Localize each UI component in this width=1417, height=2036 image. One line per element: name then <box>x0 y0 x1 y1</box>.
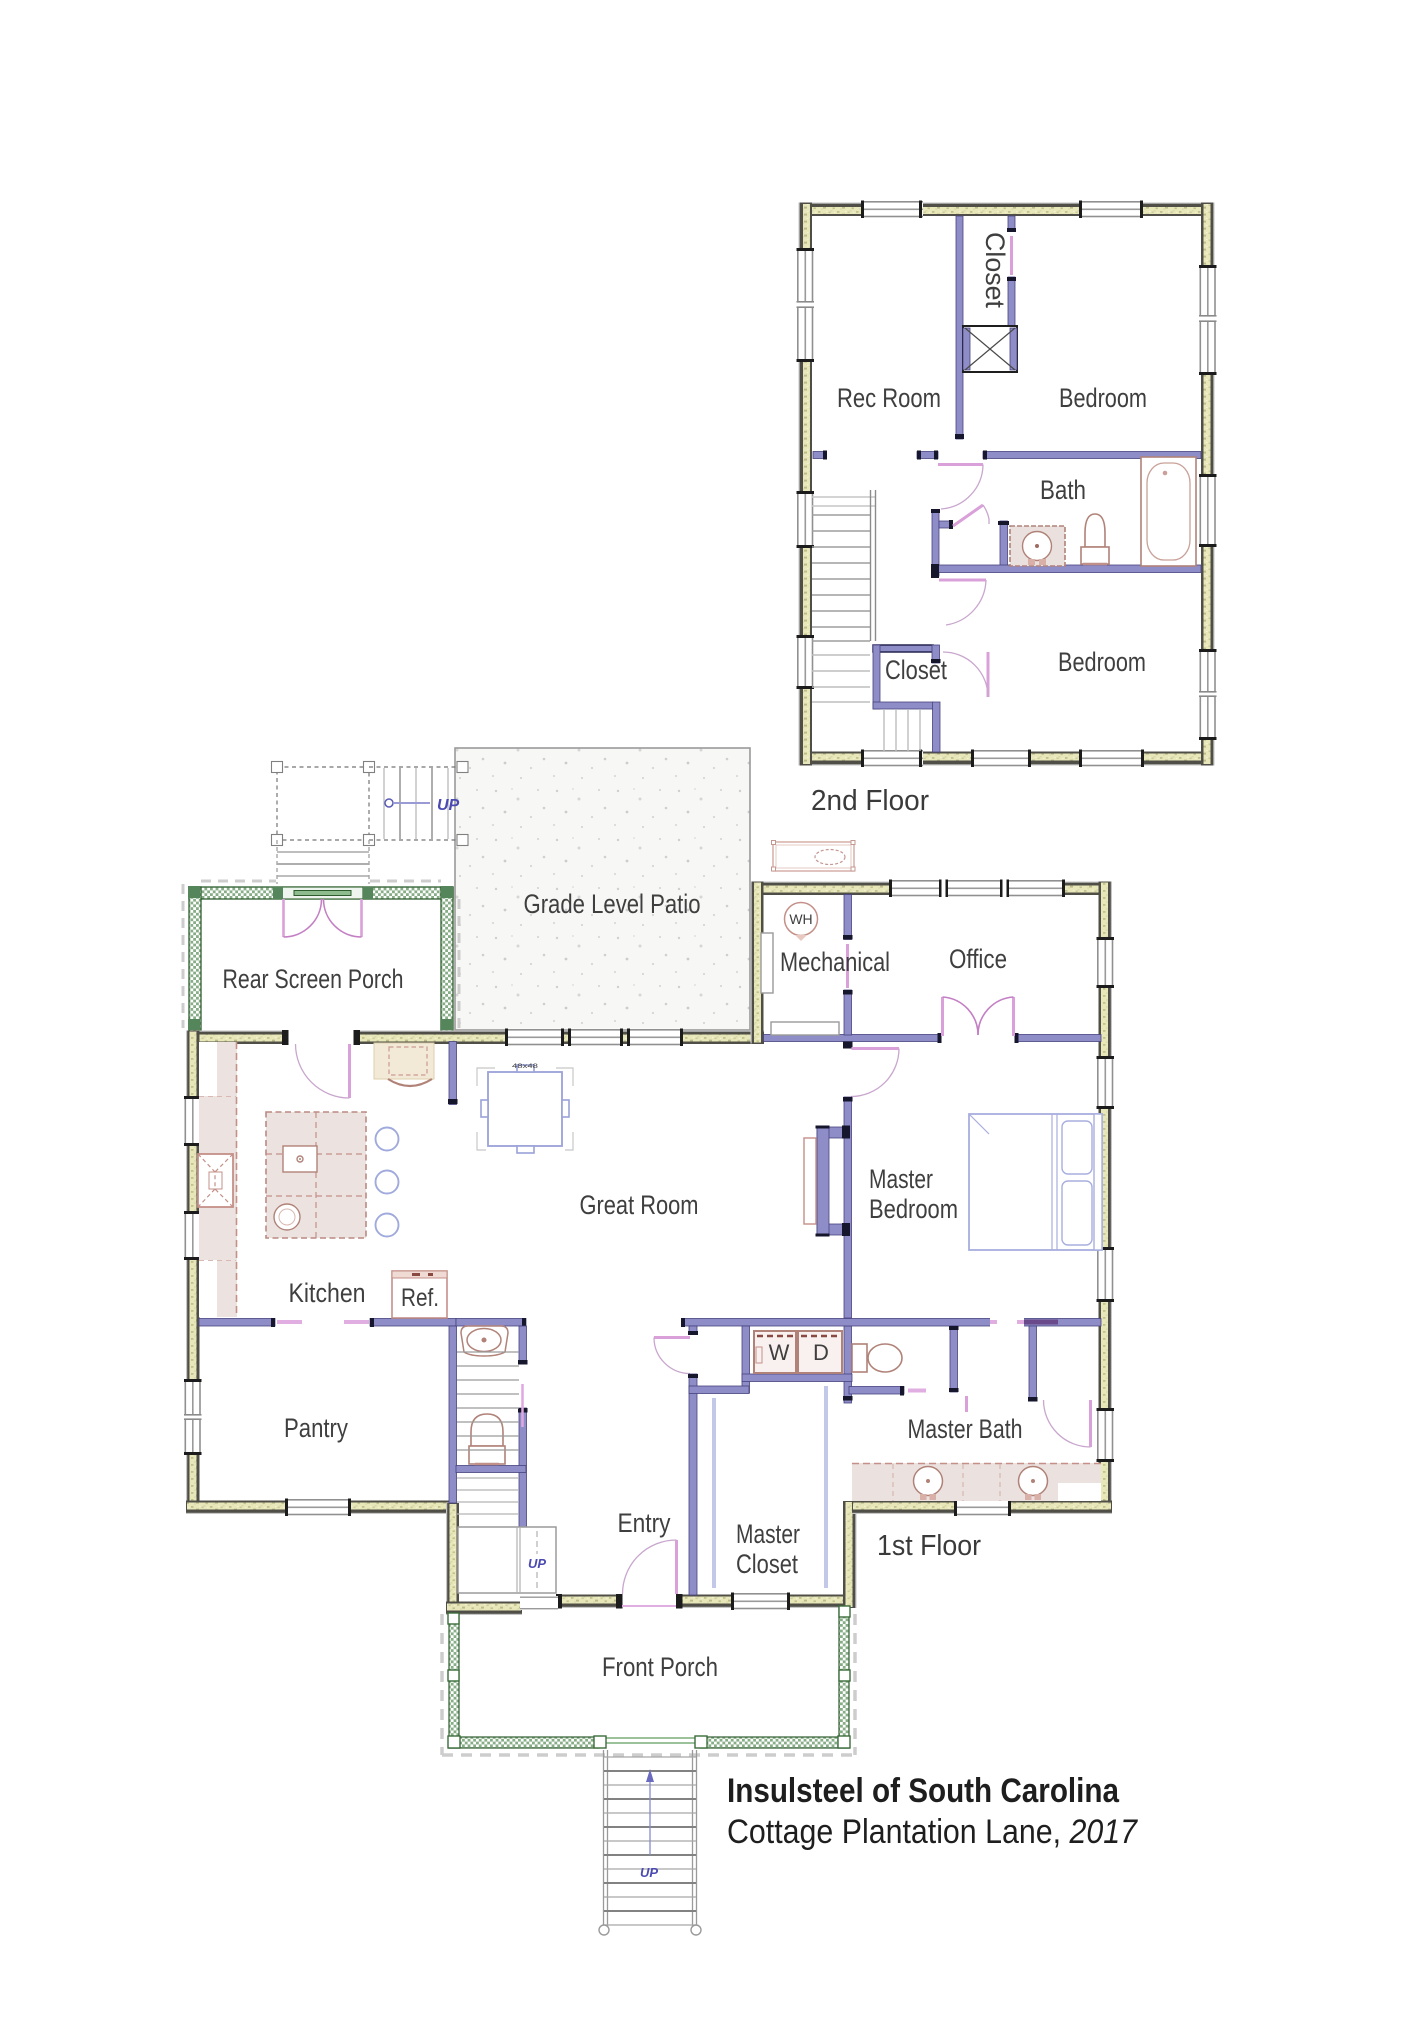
svg-text:Bedroom: Bedroom <box>869 1194 958 1224</box>
svg-text:Office: Office <box>949 944 1007 974</box>
svg-text:Entry: Entry <box>618 1508 671 1538</box>
svg-text:Closet: Closet <box>980 232 1010 308</box>
svg-text:D: D <box>813 1340 829 1365</box>
svg-text:Mechanical: Mechanical <box>780 947 890 977</box>
svg-text:Master: Master <box>736 1519 800 1549</box>
svg-text:1st Floor: 1st Floor <box>877 1530 981 1562</box>
svg-text:Front Porch: Front Porch <box>602 1652 718 1682</box>
svg-text:Bath: Bath <box>1040 475 1086 505</box>
svg-text:Bedroom: Bedroom <box>1058 647 1146 677</box>
svg-text:Closet: Closet <box>885 655 947 685</box>
svg-text:Insulsteel of South Carolina: Insulsteel of South Carolina <box>727 1772 1120 1810</box>
svg-text:Pantry: Pantry <box>284 1413 348 1443</box>
svg-text:Master: Master <box>869 1164 933 1194</box>
svg-text:W: W <box>769 1340 790 1365</box>
svg-text:Bedroom: Bedroom <box>1059 383 1147 413</box>
svg-text:Rec Room: Rec Room <box>837 383 941 413</box>
svg-text:48x48: 48x48 <box>512 1063 539 1070</box>
svg-text:Rear Screen Porch: Rear Screen Porch <box>223 964 404 994</box>
svg-text:Great Room: Great Room <box>580 1190 699 1220</box>
svg-text:Grade Level Patio: Grade Level Patio <box>524 889 701 919</box>
svg-text:Closet: Closet <box>736 1549 798 1579</box>
svg-text:Cottage Plantation Lane, 2017: Cottage Plantation Lane, 2017 <box>727 1813 1138 1851</box>
svg-text:UP: UP <box>437 797 460 814</box>
svg-text:2nd Floor: 2nd Floor <box>811 785 929 817</box>
svg-text:WH: WH <box>789 911 812 927</box>
svg-text:Ref.: Ref. <box>401 1284 439 1312</box>
svg-text:Kitchen: Kitchen <box>289 1278 366 1308</box>
svg-text:UP: UP <box>528 1556 546 1571</box>
svg-text:UP: UP <box>640 1865 658 1880</box>
svg-text:Master Bath: Master Bath <box>908 1414 1023 1444</box>
